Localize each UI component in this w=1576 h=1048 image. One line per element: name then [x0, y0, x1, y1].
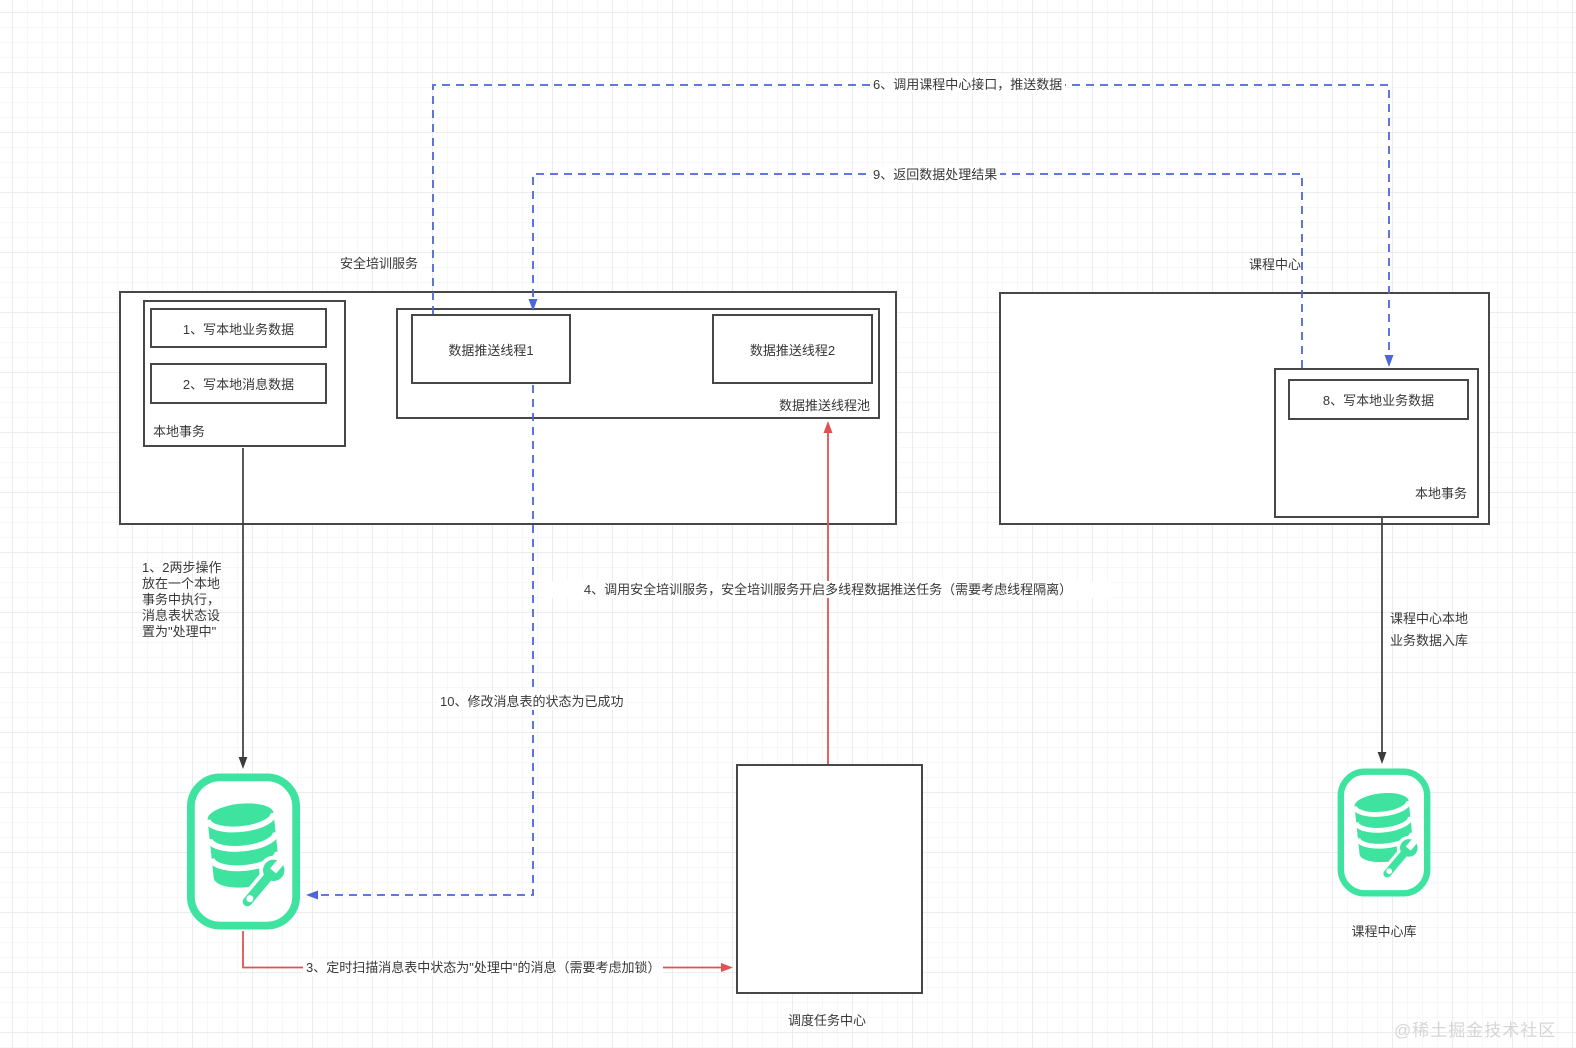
watermark-text: @稀土掘金技术社区: [1394, 1016, 1556, 1041]
message-db-icon: [185, 771, 302, 932]
edge-label-step6: 6、调用课程中心接口，推送数据: [870, 76, 1065, 93]
step8-label: 8、写本地业务数据: [1323, 390, 1434, 409]
arrowhead-right-db: [1378, 752, 1387, 764]
diagram-canvas: 本地事务 1、写本地业务数据 2、写本地消息数据 数据推送线程池 数据推送线程1…: [0, 0, 1576, 1048]
security-training-service-label: 安全培训服务: [319, 253, 439, 272]
step1-write-business-data-box: 1、写本地业务数据: [150, 308, 327, 348]
step2-write-message-data-box: 2、写本地消息数据: [150, 363, 327, 404]
course-db-icon: [1336, 766, 1432, 899]
edge-label-step10: 10、修改消息表的状态为已成功: [437, 693, 626, 710]
course-center-service-label: 课程中心: [1225, 254, 1325, 273]
course-db-inflow-label: 课程中心本地 业务数据入库: [1390, 608, 1468, 652]
thread-pool-label: 数据推送线程池: [779, 395, 870, 414]
arrowhead-left-db: [239, 757, 248, 769]
push-thread1-box: 数据推送线程1: [411, 314, 571, 384]
step2-label: 2、写本地消息数据: [183, 374, 294, 393]
push-thread1-label: 数据推送线程1: [448, 340, 533, 359]
scheduler-box: [736, 764, 923, 994]
step8-write-business-data-box: 8、写本地业务数据: [1288, 379, 1469, 420]
push-thread2-label: 数据推送线程2: [750, 340, 835, 359]
step1-label: 1、写本地业务数据: [183, 319, 294, 338]
arrowhead-step10: [306, 891, 318, 900]
push-thread2-box: 数据推送线程2: [712, 314, 873, 384]
edge-label-step4: 4、调用安全培训服务，安全培训服务开启多线程数据推送任务（需要考虑线程隔离）: [545, 581, 1111, 598]
edge-label-step3: 3、定时扫描消息表中状态为"处理中"的消息（需要考虑加锁）: [303, 959, 663, 976]
course-db-label: 课程中心库: [1324, 921, 1444, 940]
scheduler-label: 调度任务中心: [741, 1010, 913, 1029]
note-step1-2-transaction: 1、2两步操作 放在一个本地 事务中执行， 消息表状态设 置为"处理中": [142, 560, 238, 640]
edge-label-step9: 9、返回数据处理结果: [870, 166, 1000, 183]
local-transaction-label-left: 本地事务: [153, 421, 205, 440]
local-transaction-label-right: 本地事务: [1415, 483, 1467, 502]
arrowhead-step3: [721, 963, 733, 972]
